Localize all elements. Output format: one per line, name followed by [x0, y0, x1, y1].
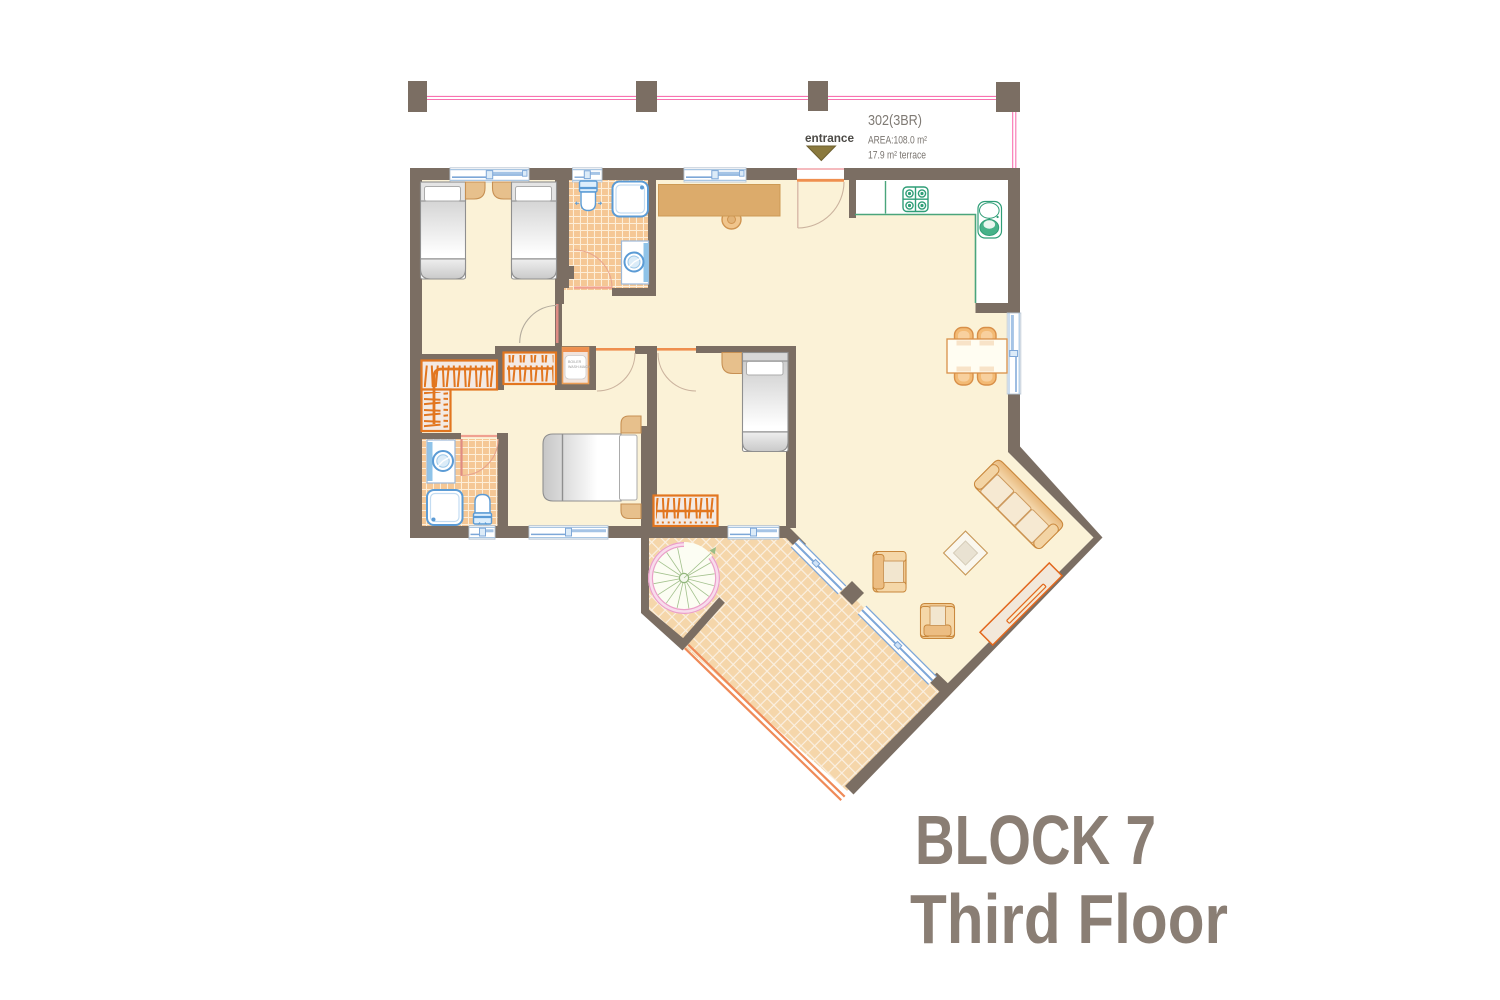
svg-text:17.9 m² terrace: 17.9 m² terrace — [868, 150, 926, 162]
svg-text:WASH.MACH: WASH.MACH — [568, 365, 591, 369]
svg-text:BOILER: BOILER — [568, 360, 582, 364]
svg-text:BLOCK 7: BLOCK 7 — [915, 801, 1156, 879]
svg-text:entrance: entrance — [805, 133, 854, 145]
svg-text:Third Floor: Third Floor — [910, 880, 1228, 958]
svg-text:302(3BR): 302(3BR) — [868, 112, 922, 129]
svg-text:AREA:108.0 m²: AREA:108.0 m² — [868, 135, 927, 147]
